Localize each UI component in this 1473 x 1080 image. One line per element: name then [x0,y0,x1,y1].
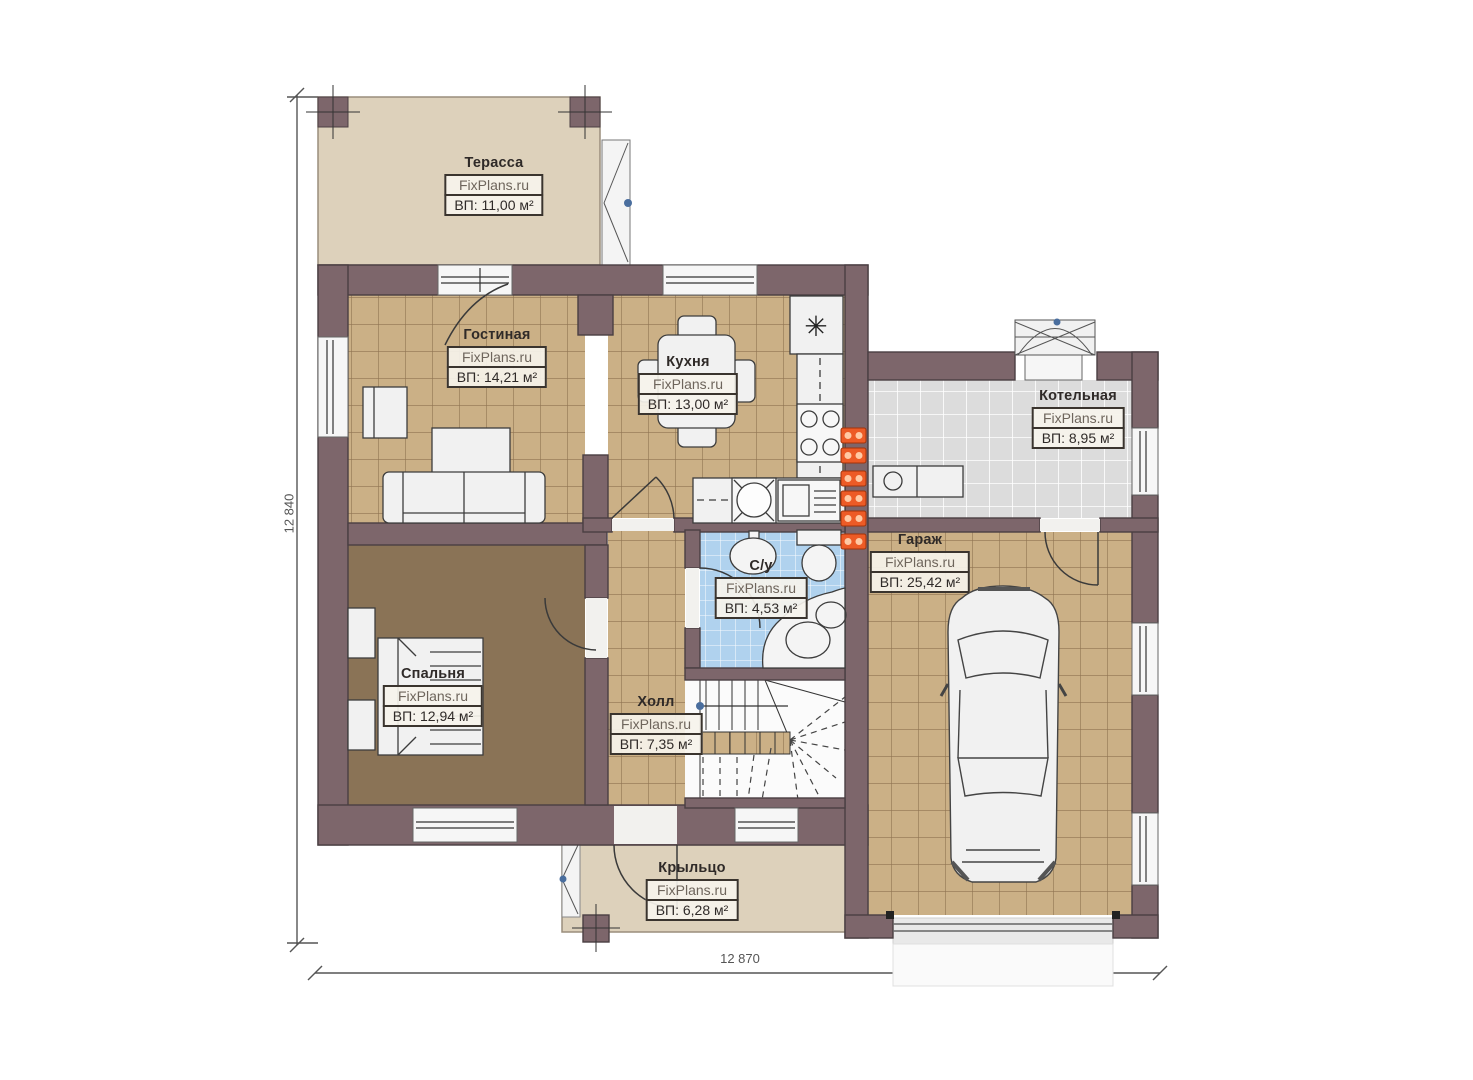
dimension-left: 12 840 [282,479,297,549]
watermark: FixPlans.ru [646,879,739,901]
driveway [893,918,1113,986]
watermark: FixPlans.ru [383,685,483,707]
watermark: FixPlans.ru [1032,407,1125,429]
stove [797,404,843,462]
nightstand [348,700,375,750]
flue-block [841,534,866,549]
watermark: FixPlans.ru [610,713,703,735]
room-area: ВП: 14,21 м² [447,366,547,388]
room-name: Холл [610,694,703,710]
boiler-unit [873,466,963,497]
hall-floor [608,530,685,805]
terrace-steps [602,140,632,265]
room-area: ВП: 13,00 м² [638,393,738,415]
watermark: FixPlans.ru [870,551,970,573]
flue-block [841,491,866,506]
room-name: Котельная [1032,388,1125,404]
room-area: ВП: 7,35 м² [610,733,703,755]
room-label-boiler: Котельная FixPlans.ru ВП: 8,95 м² [1032,388,1125,449]
room-label-bathroom: С/у FixPlans.ru ВП: 4,53 м² [715,558,808,619]
room-area: ВП: 6,28 м² [646,899,739,921]
room-name: Крыльцо [646,860,739,876]
room-name: Кухня [638,354,738,370]
watermark: FixPlans.ru [444,174,543,196]
room-label-garage: Гараж FixPlans.ru ВП: 25,42 м² [870,532,970,593]
kitchen-sink [732,478,776,523]
flue-block [841,471,866,486]
dimension-bottom: 12 870 [700,951,780,966]
floor-plan-page: ✳ [0,0,1473,1080]
room-area: ВП: 25,42 м² [870,571,970,593]
boiler-casement-window [1015,319,1095,356]
room-label-living: Гостиная FixPlans.ru ВП: 14,21 м² [447,327,547,388]
fridge-snowflake-icon: ✳ [804,311,827,342]
flue-block [841,511,866,526]
staircase [685,680,845,800]
flue-block [841,428,866,443]
watermark: FixPlans.ru [638,373,738,395]
room-label-bedroom: Спальня FixPlans.ru ВП: 12,94 м² [383,666,483,727]
room-label-porch: Крыльцо FixPlans.ru ВП: 6,28 м² [646,860,739,921]
room-name: С/у [715,558,808,574]
room-name: Гараж [870,532,970,548]
tv-stand [363,387,407,438]
room-name: Гостиная [447,327,547,343]
room-name: Терасса [444,155,543,171]
room-area: ВП: 11,00 м² [444,194,543,216]
sofa [383,472,545,523]
room-area: ВП: 8,95 м² [1032,427,1125,449]
room-area: ВП: 12,94 м² [383,705,483,727]
flue-block [841,448,866,463]
car [941,586,1066,882]
watermark: FixPlans.ru [715,577,808,599]
room-name: Спальня [383,666,483,682]
room-label-hall: Холл FixPlans.ru ВП: 7,35 м² [610,694,703,755]
room-label-kitchen: Кухня FixPlans.ru ВП: 13,00 м² [638,354,738,415]
dishwasher [778,480,840,521]
room-area: ВП: 4,53 м² [715,597,808,619]
watermark: FixPlans.ru [447,346,547,368]
nightstand [348,608,375,658]
coffee-table [432,428,510,477]
room-label-terrace: Терасса FixPlans.ru ВП: 11,00 м² [444,155,543,216]
